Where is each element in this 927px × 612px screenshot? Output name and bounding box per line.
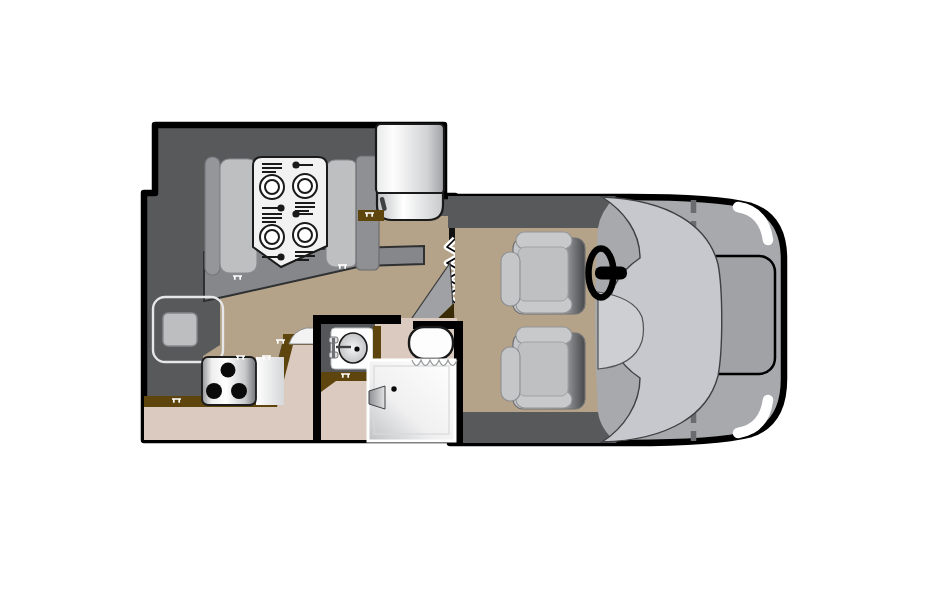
bathroom-wall-left (313, 315, 321, 443)
cab-wall-bottom (462, 412, 617, 443)
floor-plan-canvas (0, 0, 927, 612)
tv-screen (163, 313, 197, 346)
passenger-seat (501, 327, 585, 409)
toilet (409, 327, 453, 359)
shower (368, 360, 457, 441)
seat-bolster (516, 327, 572, 344)
cooktop (202, 357, 256, 405)
bathroom-wall-top-a (317, 315, 401, 324)
rv-floor-plan (0, 0, 927, 612)
cab-interior (448, 196, 722, 443)
bench-left-back (205, 157, 220, 275)
shower-drain (391, 386, 396, 391)
dinette-table (253, 157, 327, 267)
seat-bolster (516, 232, 572, 249)
galley-cabinet-strip (358, 210, 384, 221)
seat-armrest (501, 347, 520, 401)
bench-left-seat (220, 159, 257, 273)
seat-cushion (518, 342, 568, 396)
bathroom (313, 315, 463, 443)
burner (206, 383, 222, 399)
burner (221, 363, 236, 378)
bench-right-seat (326, 160, 358, 267)
shower-curtain (412, 360, 457, 366)
faucet-body (332, 338, 335, 358)
seat-armrest (501, 252, 520, 306)
burner (231, 383, 247, 399)
sink-drain (354, 346, 359, 351)
refrigerator (376, 124, 444, 220)
seat-cushion (518, 247, 568, 301)
cab-wall-top (448, 196, 616, 228)
counter-white-section (256, 357, 284, 405)
driver-seat (501, 232, 585, 314)
